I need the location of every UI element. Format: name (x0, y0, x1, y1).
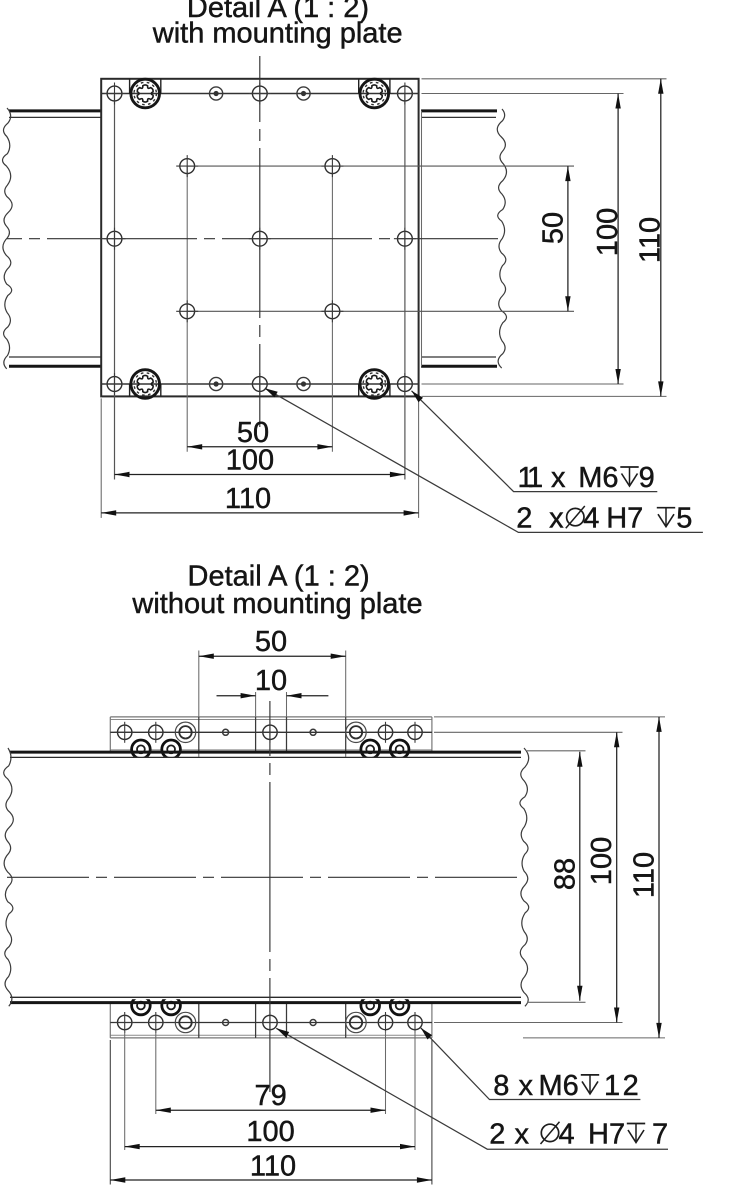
svg-text:with mounting plate: with mounting plate (152, 18, 403, 50)
svg-text:5: 5 (676, 503, 692, 535)
svg-text:50: 50 (537, 212, 569, 244)
svg-text:without mounting plate: without mounting plate (131, 588, 422, 620)
svg-text:10: 10 (255, 665, 287, 697)
svg-text:x: x (551, 462, 566, 494)
svg-text:2: 2 (489, 1119, 505, 1151)
svg-text:100: 100 (246, 1116, 294, 1148)
svg-text:2: 2 (516, 503, 532, 535)
svg-text:M6: M6 (539, 1070, 579, 1102)
svg-text:88: 88 (549, 858, 581, 890)
svg-text:4: 4 (559, 1119, 575, 1151)
svg-text:11: 11 (518, 462, 542, 494)
svg-text:M6: M6 (578, 462, 618, 494)
svg-text:110: 110 (250, 1150, 296, 1182)
svg-text:100: 100 (586, 837, 618, 885)
svg-text:H7: H7 (588, 1119, 625, 1151)
svg-text:x: x (549, 503, 564, 535)
svg-text:100: 100 (592, 208, 624, 256)
svg-text:100: 100 (226, 445, 274, 477)
svg-text:7: 7 (652, 1119, 668, 1151)
svg-text:12: 12 (604, 1070, 641, 1102)
svg-text:x: x (519, 1070, 534, 1102)
svg-text:8: 8 (493, 1070, 509, 1102)
svg-text:50: 50 (255, 626, 287, 658)
svg-text:H7: H7 (606, 503, 643, 535)
svg-text:110: 110 (635, 217, 667, 263)
svg-text:110: 110 (225, 483, 271, 515)
svg-text:79: 79 (254, 1080, 286, 1112)
svg-text:x: x (515, 1119, 530, 1151)
svg-text:110: 110 (629, 852, 661, 898)
svg-text:4: 4 (583, 503, 599, 535)
svg-text:9: 9 (639, 462, 655, 494)
